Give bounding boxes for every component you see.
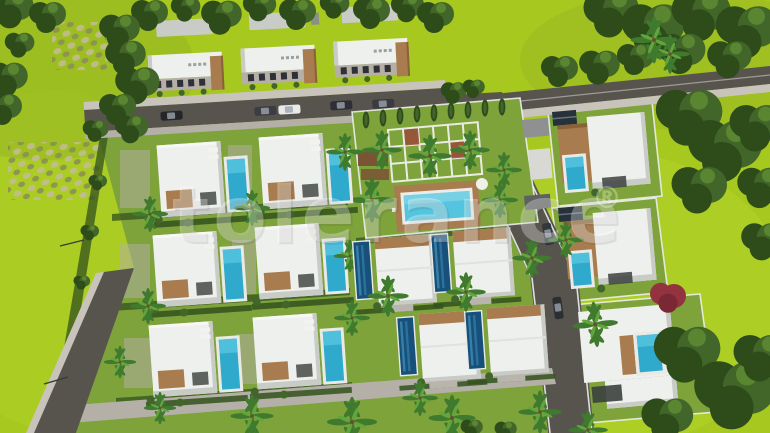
registered-mark: ®	[592, 181, 626, 216]
watermark: tolerance tolerance ®	[172, 171, 626, 263]
planter-bed	[404, 128, 419, 145]
watermark-text: tolerance	[172, 171, 624, 261]
aerial-render: tolerance tolerance ®	[0, 0, 770, 433]
carport-roof	[522, 118, 549, 138]
